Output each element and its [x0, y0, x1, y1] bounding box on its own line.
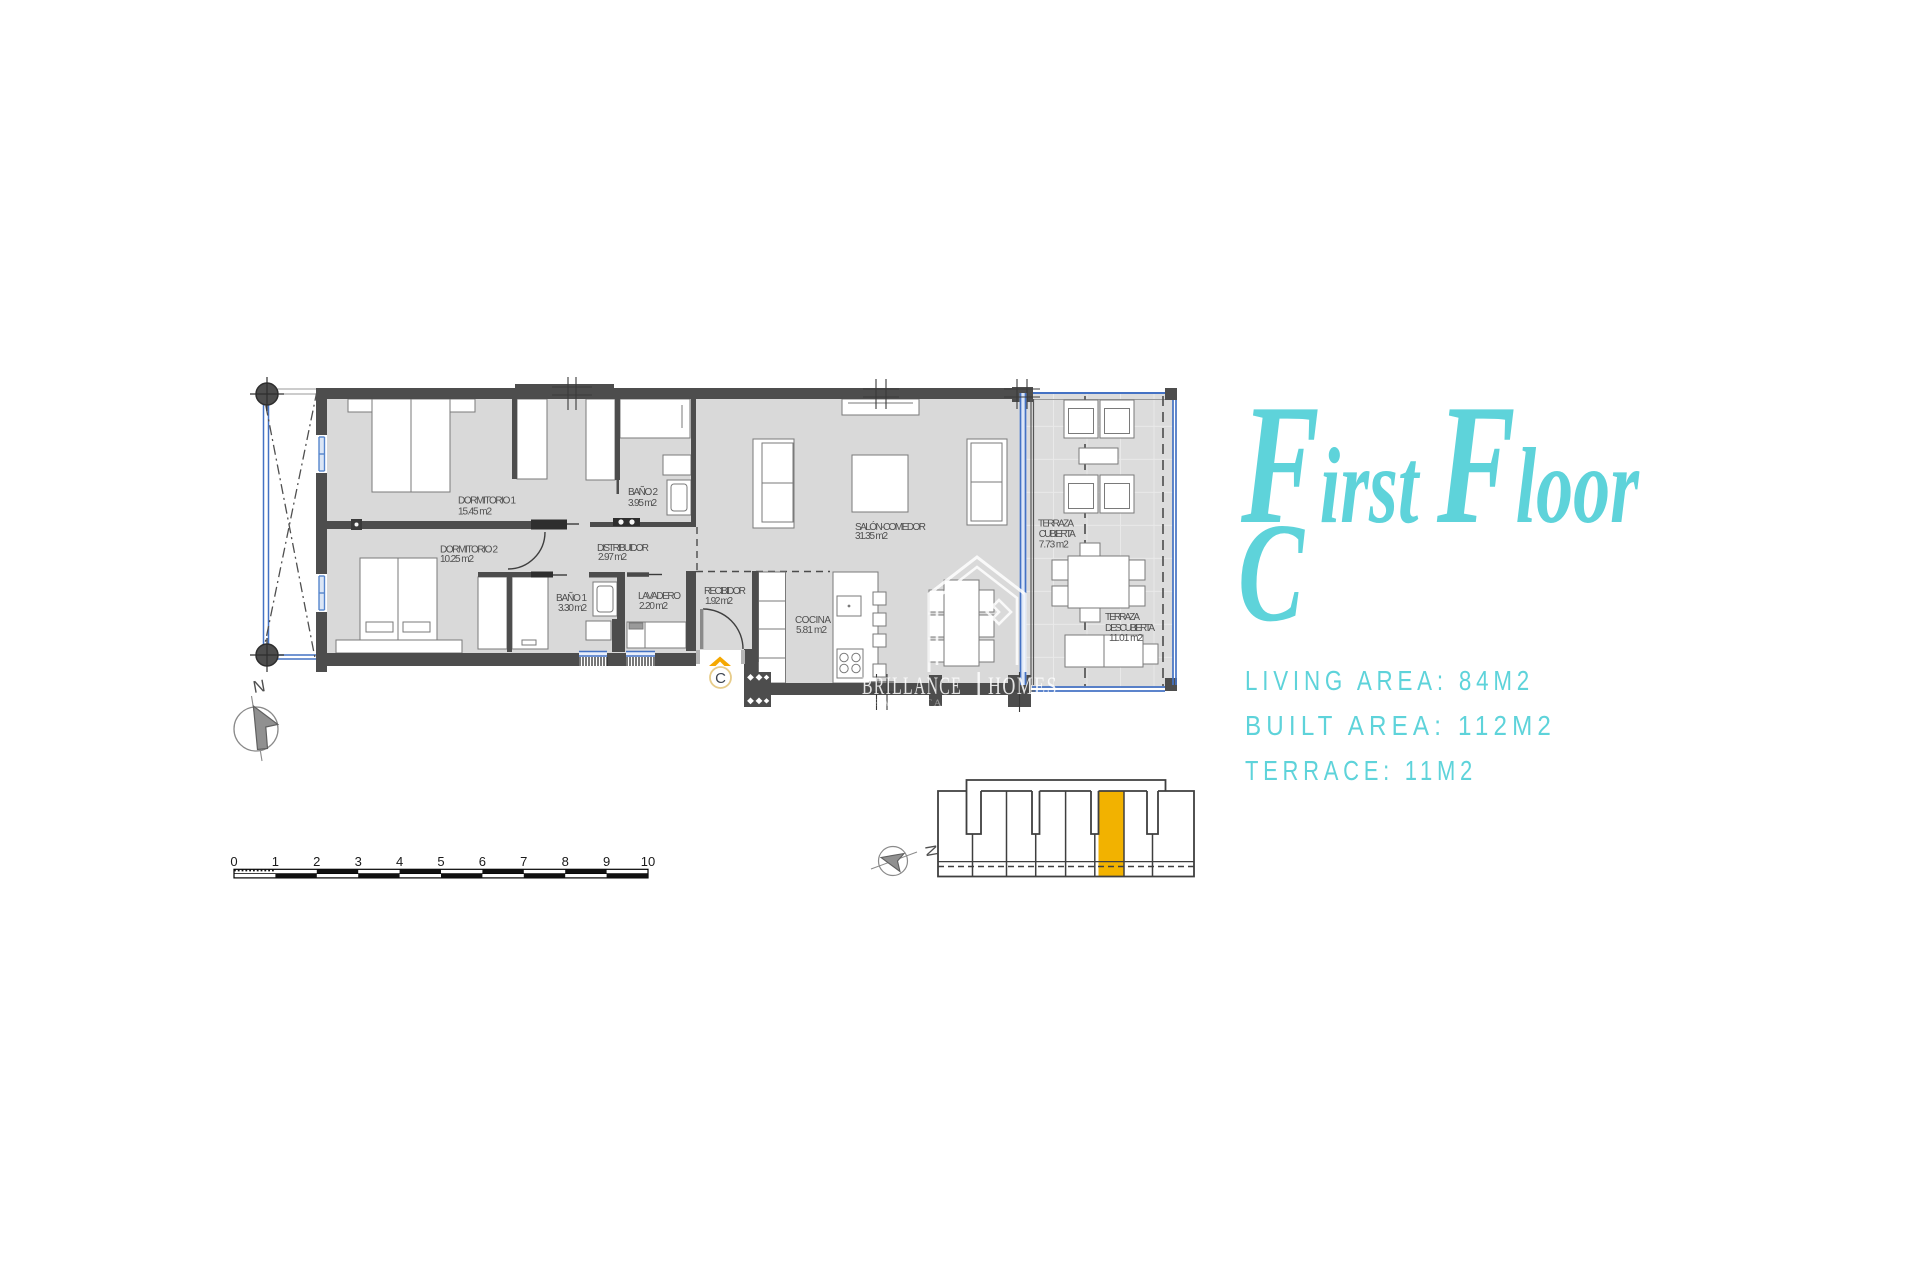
svg-text:BUILT AREA: 112M2: BUILT AREA: 112M2 [1245, 710, 1556, 741]
svg-text:1: 1 [272, 854, 279, 869]
svg-text:DORMITORIO 1: DORMITORIO 1 [458, 496, 516, 507]
svg-text:TERRAZA: TERRAZA [1038, 519, 1074, 530]
svg-text:6: 6 [479, 854, 486, 869]
svg-text:N: N [251, 676, 266, 697]
svg-text:0: 0 [230, 854, 237, 869]
svg-text:15.45 m2: 15.45 m2 [458, 507, 492, 518]
svg-text:2.97 m2: 2.97 m2 [598, 552, 627, 563]
svg-text:3: 3 [355, 854, 362, 869]
svg-text:TERRACE: 11M2: TERRACE: 11M2 [1245, 755, 1477, 786]
svg-text:3.30 m2: 3.30 m2 [558, 603, 587, 614]
svg-text:C: C [715, 670, 726, 687]
svg-text:5: 5 [437, 854, 444, 869]
svg-text:9: 9 [603, 854, 610, 869]
svg-text:1.92 m2: 1.92 m2 [705, 596, 733, 607]
svg-text:C: C [1238, 493, 1306, 651]
svg-text:HOMES: HOMES [988, 673, 1058, 700]
svg-text:11.01 m2: 11.01 m2 [1109, 633, 1143, 644]
svg-text:CUBIERTA: CUBIERTA [1039, 529, 1076, 540]
svg-text:10: 10 [641, 854, 655, 869]
svg-text:3.95 m2: 3.95 m2 [628, 498, 657, 509]
svg-text:2: 2 [313, 854, 320, 869]
svg-text:8: 8 [562, 854, 569, 869]
svg-text:31.35 m2: 31.35 m2 [855, 531, 888, 542]
svg-text:REAL ESTATE: REAL ESTATE [862, 698, 962, 708]
svg-text:5.81 m2: 5.81 m2 [796, 625, 827, 636]
svg-text:BAÑO 2: BAÑO 2 [628, 485, 658, 498]
svg-text:BRILLANCE: BRILLANCE [862, 673, 962, 700]
svg-text:N: N [921, 844, 940, 858]
svg-text:10.25 m2: 10.25 m2 [440, 554, 474, 565]
svg-text:7: 7 [520, 854, 527, 869]
svg-text:LIVING AREA: 84M2: LIVING AREA: 84M2 [1245, 665, 1534, 696]
svg-text:4: 4 [396, 854, 403, 869]
svg-text:TERRAZA: TERRAZA [1105, 612, 1140, 623]
svg-text:2.20 m2: 2.20 m2 [639, 601, 668, 612]
svg-text:7.73 m2: 7.73 m2 [1039, 540, 1069, 551]
